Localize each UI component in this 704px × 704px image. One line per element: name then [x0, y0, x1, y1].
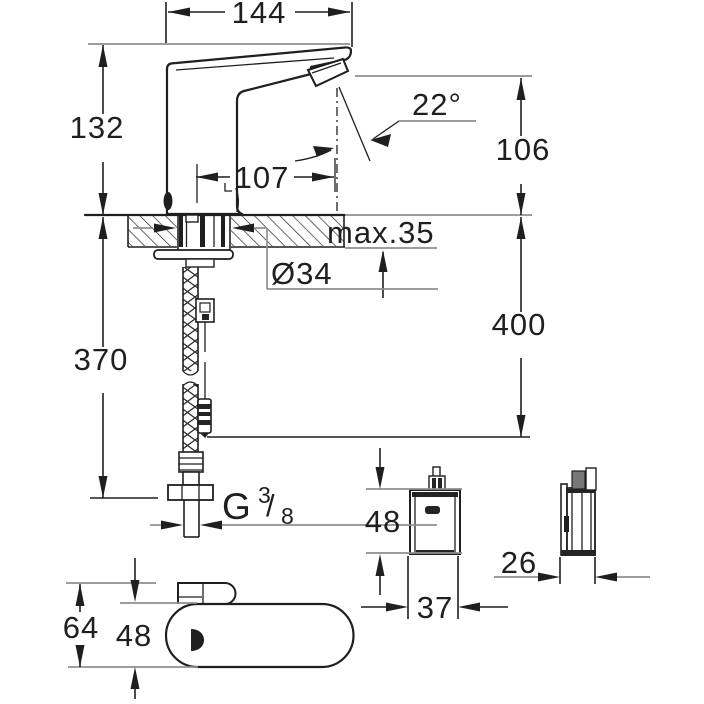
side-bottom-band — [561, 550, 596, 556]
base-top-view — [166, 583, 354, 667]
box-top-band — [412, 492, 458, 497]
dim-label-107: 107 — [235, 160, 290, 195]
control-box-side-view — [561, 468, 596, 556]
dim-22deg: 22° — [370, 87, 476, 147]
hose-break-top — [183, 371, 198, 375]
base-left-flare — [164, 192, 173, 210]
dim-48-base: 48 — [116, 558, 152, 699]
cable-connector-pin — [202, 314, 209, 320]
dim-label-g-den: 8 — [281, 503, 295, 529]
dim-label-26: 26 — [501, 545, 537, 580]
dim-label-37: 37 — [417, 590, 453, 625]
dim-48-box: 48 — [365, 448, 401, 595]
dim-400: 400 — [492, 217, 547, 437]
shank-stud — [200, 216, 205, 247]
shank-stud — [221, 216, 225, 247]
angle-arc-arrowhead — [313, 146, 334, 157]
side-clip-tick — [564, 516, 569, 532]
dim-106: 106 — [496, 78, 551, 215]
grohe-logo-mark — [425, 506, 440, 514]
hose-neck — [183, 472, 199, 485]
dim-132: 132 — [70, 45, 125, 215]
spray-direction-line — [339, 87, 370, 161]
mounting-washer — [154, 250, 233, 259]
dim-label-g-slash: / — [266, 488, 276, 523]
shank-top-block — [186, 215, 198, 222]
dim-label-106: 106 — [496, 132, 551, 167]
dim-label-370: 370 — [74, 342, 129, 377]
box-body — [410, 490, 460, 554]
braided-hose-lower — [183, 384, 198, 452]
dim-37: 37 — [361, 590, 508, 625]
side-connector — [572, 471, 585, 489]
dim-370: 370 — [74, 217, 129, 498]
counter-hatch-left — [128, 216, 177, 246]
faucet-technical-drawing: 144 132 107 22° 106 max.35 Ø34 400 — [0, 0, 704, 704]
dim-label-max35: max.35 — [327, 215, 435, 250]
dim-144: 144 — [168, 0, 350, 30]
dim-label-48-base: 48 — [116, 618, 152, 653]
dim-64: 64 — [63, 584, 99, 667]
dim-label-48-box: 48 — [365, 504, 401, 539]
dim-label-144: 144 — [232, 0, 287, 30]
dim-label-400: 400 — [492, 307, 547, 342]
dim-max35: max.35 — [327, 215, 435, 298]
control-box-front-view — [410, 467, 460, 555]
base-clip — [178, 583, 236, 604]
side-connector-tab — [586, 468, 596, 490]
mounting-nut — [186, 259, 214, 267]
dim-label-64: 64 — [63, 610, 99, 645]
dim-label-132: 132 — [70, 110, 125, 145]
shank-stud — [179, 216, 183, 247]
hose-ferrule — [179, 452, 203, 472]
dim-label-22deg: 22° — [412, 87, 462, 122]
dim-label-g: G — [222, 486, 252, 527]
dim-label-dia34: Ø34 — [271, 256, 333, 291]
hex-nut — [168, 485, 213, 500]
